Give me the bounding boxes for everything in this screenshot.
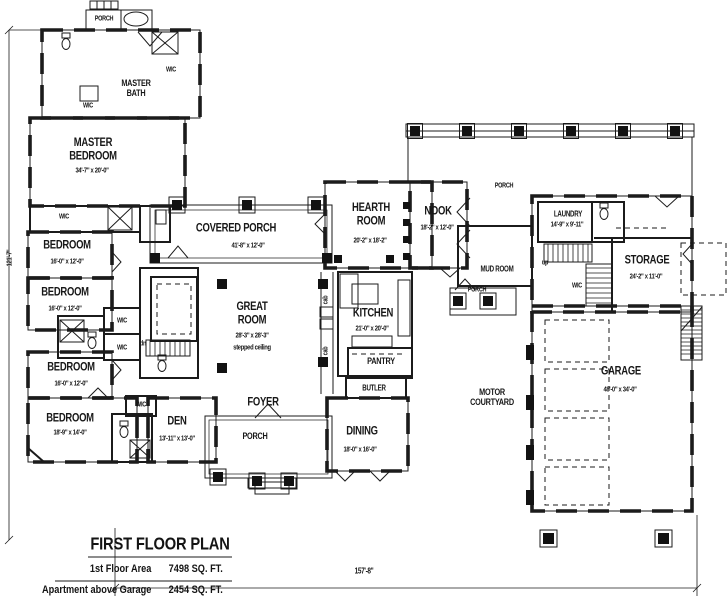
stairs — [146, 244, 702, 360]
column-posts — [150, 124, 683, 548]
garage-bay — [545, 320, 609, 362]
room-dims-garage: 48'-0" x 34'-0" — [603, 386, 636, 394]
room-dims-bedroom-bottom: 18'-9" x 14'-0" — [53, 429, 86, 437]
room-dims-bedroom-top: 16'-0" x 12'-0" — [50, 258, 83, 266]
kitchen-island-icon — [352, 284, 378, 304]
overall-width-dimension: 157'-8" — [355, 567, 374, 576]
room-dims-storage: 24'-2" x 11'-0" — [630, 273, 663, 281]
room-label-foyer: FOYER — [247, 397, 278, 410]
toilet-icon — [600, 209, 608, 220]
wic-label-bottom: WIC — [136, 402, 146, 409]
garage-bay — [545, 369, 609, 411]
room-label-covered-porch: COVERED PORCH — [196, 223, 276, 236]
wic-label-suite-right: WIC — [166, 67, 176, 74]
room-note-great-room: stepped ceiling — [233, 344, 270, 352]
wic-label-hall-1: WIC — [117, 318, 127, 325]
room-label-bedroom-bottom: BEDROOM — [46, 413, 94, 426]
title-block-row-2: Apartment above Garage 2454 SQ. FT. — [8, 585, 232, 596]
wic-label-right-wing: WIC — [572, 283, 582, 290]
room-dims-bedroom-mid: 16'-0" x 12'-0" — [48, 305, 81, 313]
porch-label-mud: PORCH — [468, 287, 487, 294]
toilet-icon — [120, 427, 128, 438]
floor-plan-drawing — [0, 0, 728, 610]
floor-plan-linework — [0, 0, 728, 605]
room-dims-nook: 18'-2" x 12'-0" — [420, 224, 453, 232]
toilet-icon — [88, 338, 96, 349]
room-label-hearth-room: HEARTH ROOM — [352, 202, 390, 227]
porch-label-front: PORCH — [242, 431, 267, 441]
tub-icon — [124, 12, 148, 26]
room-label-bedroom-lower: BEDROOM — [47, 362, 95, 375]
room-label-dining: DINING — [346, 426, 378, 439]
apartment-row-value: 2454 SQ. FT. — [169, 585, 230, 597]
vanity-icon — [80, 86, 98, 101]
room-label-master-bedroom: MASTER BEDROOM — [69, 137, 117, 162]
cab-label-1: cab — [323, 296, 330, 305]
wic-label-suite-left: WIC — [83, 103, 93, 110]
wic-label-master: WIC — [59, 214, 69, 221]
room-label-bedroom-top: BEDROOM — [43, 240, 91, 253]
room-label-nook: NOOK — [424, 206, 451, 219]
up-label: up — [542, 260, 548, 267]
garage-bay — [545, 418, 609, 460]
exterior-walls — [28, 30, 692, 511]
room-label-kitchen: KITCHEN — [353, 308, 393, 321]
area-row-value: 7498 SQ. FT. — [169, 564, 230, 576]
cabinet-wall — [320, 272, 333, 394]
cab-label-2: cab — [323, 347, 330, 356]
porch-label-rear: PORCH — [495, 183, 514, 190]
room-dims-great-room: 28'-3" x 28'-3" — [235, 332, 268, 340]
room-dims-kitchen: 21'-0" x 20'-0" — [355, 325, 388, 333]
toilet-icon — [158, 361, 166, 372]
wic-label-hall-2: WIC — [117, 345, 127, 352]
room-dims-den: 13'-11" x 13'-0" — [159, 435, 195, 443]
room-label-garage: GARAGE — [601, 366, 641, 379]
floor-plan-page: { "plan": { "rooms": { "master_bedroom":… — [0, 0, 728, 605]
room-dims-laundry: 14'-9" x 9'-11" — [551, 221, 584, 229]
dn-label: dn — [140, 341, 146, 348]
room-label-storage: STORAGE — [625, 255, 670, 268]
overall-height-dimension: 121'-7" — [6, 250, 14, 267]
apartment-row-label: Apartment above Garage — [14, 585, 159, 597]
room-label-bedroom-mid: BEDROOM — [41, 287, 89, 300]
room-label-motor-courtyard: MOTOR COURTYARD — [470, 387, 514, 407]
title-block-row-1: 1st Floor Area 7498 SQ. FT. — [8, 564, 232, 575]
room-label-mud-room: MUD ROOM — [481, 265, 514, 273]
room-dims-covered-porch: 41'-8" x 12'-0" — [231, 242, 264, 250]
room-dims-hearth-room: 20'-2" x 18'-2" — [353, 237, 386, 245]
room-label-master-bath: MASTER BATH — [121, 78, 150, 98]
garage-bay — [545, 467, 609, 505]
plan-title: FIRST FLOOR PLAN — [90, 535, 229, 555]
room-label-great-room: GREAT ROOM — [236, 301, 267, 326]
sink-icon — [156, 210, 166, 224]
room-label-pantry: PANTRY — [367, 356, 395, 366]
toilet-icon — [62, 39, 70, 50]
porch-label-top: PORCH — [95, 16, 114, 23]
fireplace-hearth — [157, 284, 191, 334]
window-underlay-lines — [28, 30, 692, 511]
room-dims-bedroom-lower: 16'-0" x 12'-0" — [54, 380, 87, 388]
area-row-label: 1st Floor Area — [14, 564, 159, 576]
stair-landing — [681, 243, 726, 295]
room-dims-dining: 18'-0" x 16'-0" — [343, 446, 376, 454]
room-label-butler: BUTLER — [362, 384, 386, 392]
room-label-laundry: LAUNDRY — [554, 210, 582, 218]
room-dims-master-bedroom: 34'-7" x 20'-0" — [75, 167, 108, 175]
room-label-den: DEN — [167, 416, 186, 429]
